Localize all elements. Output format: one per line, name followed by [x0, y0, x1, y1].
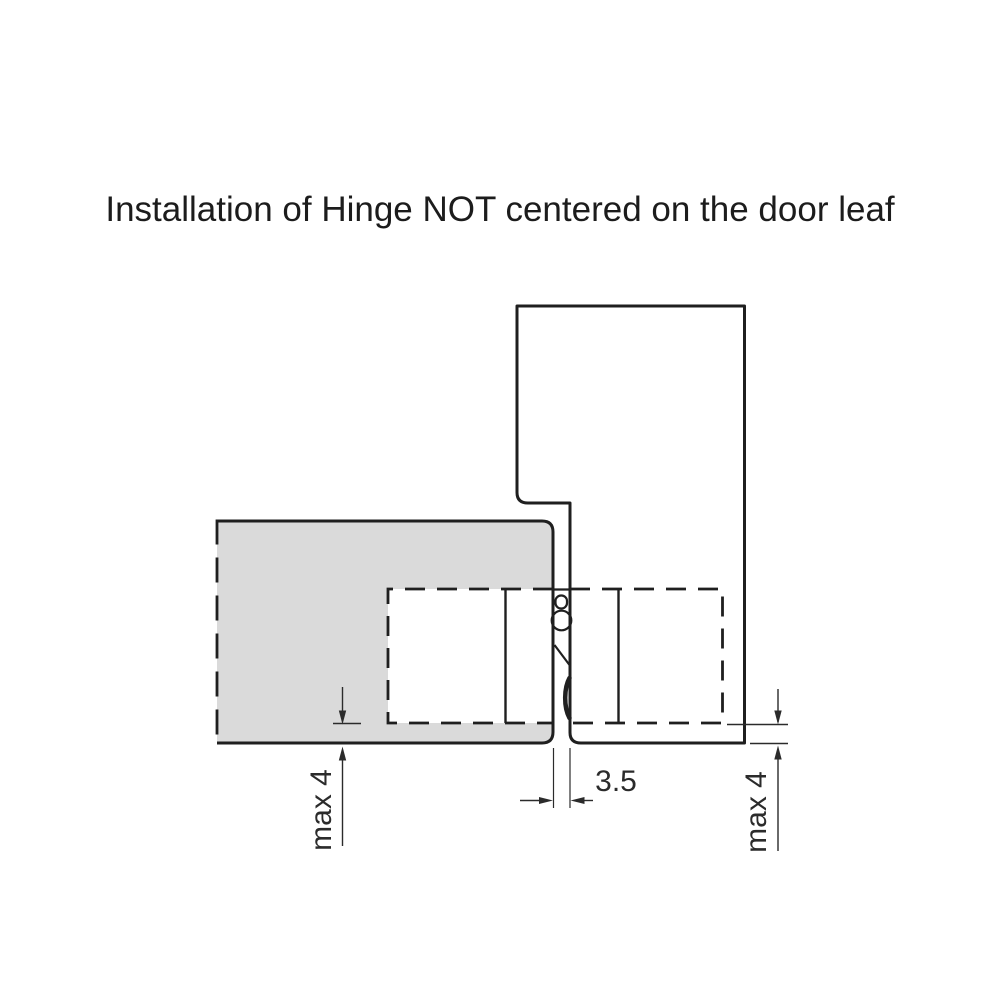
- knuckle-diagonal-line: [555, 645, 570, 665]
- hinge-pin-circle: [552, 611, 572, 631]
- hinge-cutout-frame-fill: [570, 589, 723, 723]
- dim-label-hinge-gap: 3.5: [595, 765, 637, 798]
- diagram-page: Installation of Hinge NOT centered on th…: [0, 0, 1000, 1000]
- dim-label-leaf-offset: max 4: [305, 769, 338, 851]
- arrowhead-down: [774, 711, 781, 725]
- knuckle-insert: [556, 596, 568, 609]
- dimension-hinge-gap: 3.5: [520, 748, 637, 808]
- dimension-frame-offset: max 4: [727, 689, 788, 853]
- arrowhead-up: [774, 746, 781, 760]
- arrowhead-up: [339, 747, 346, 761]
- hinge-installation-drawing: max 4 3.5 max 4: [0, 0, 1000, 1000]
- arrowhead-left: [571, 797, 585, 804]
- arrowhead-right: [539, 797, 553, 804]
- dim-label-frame-offset: max 4: [740, 771, 773, 853]
- hinge-cutout-leaf-fill: [388, 589, 553, 723]
